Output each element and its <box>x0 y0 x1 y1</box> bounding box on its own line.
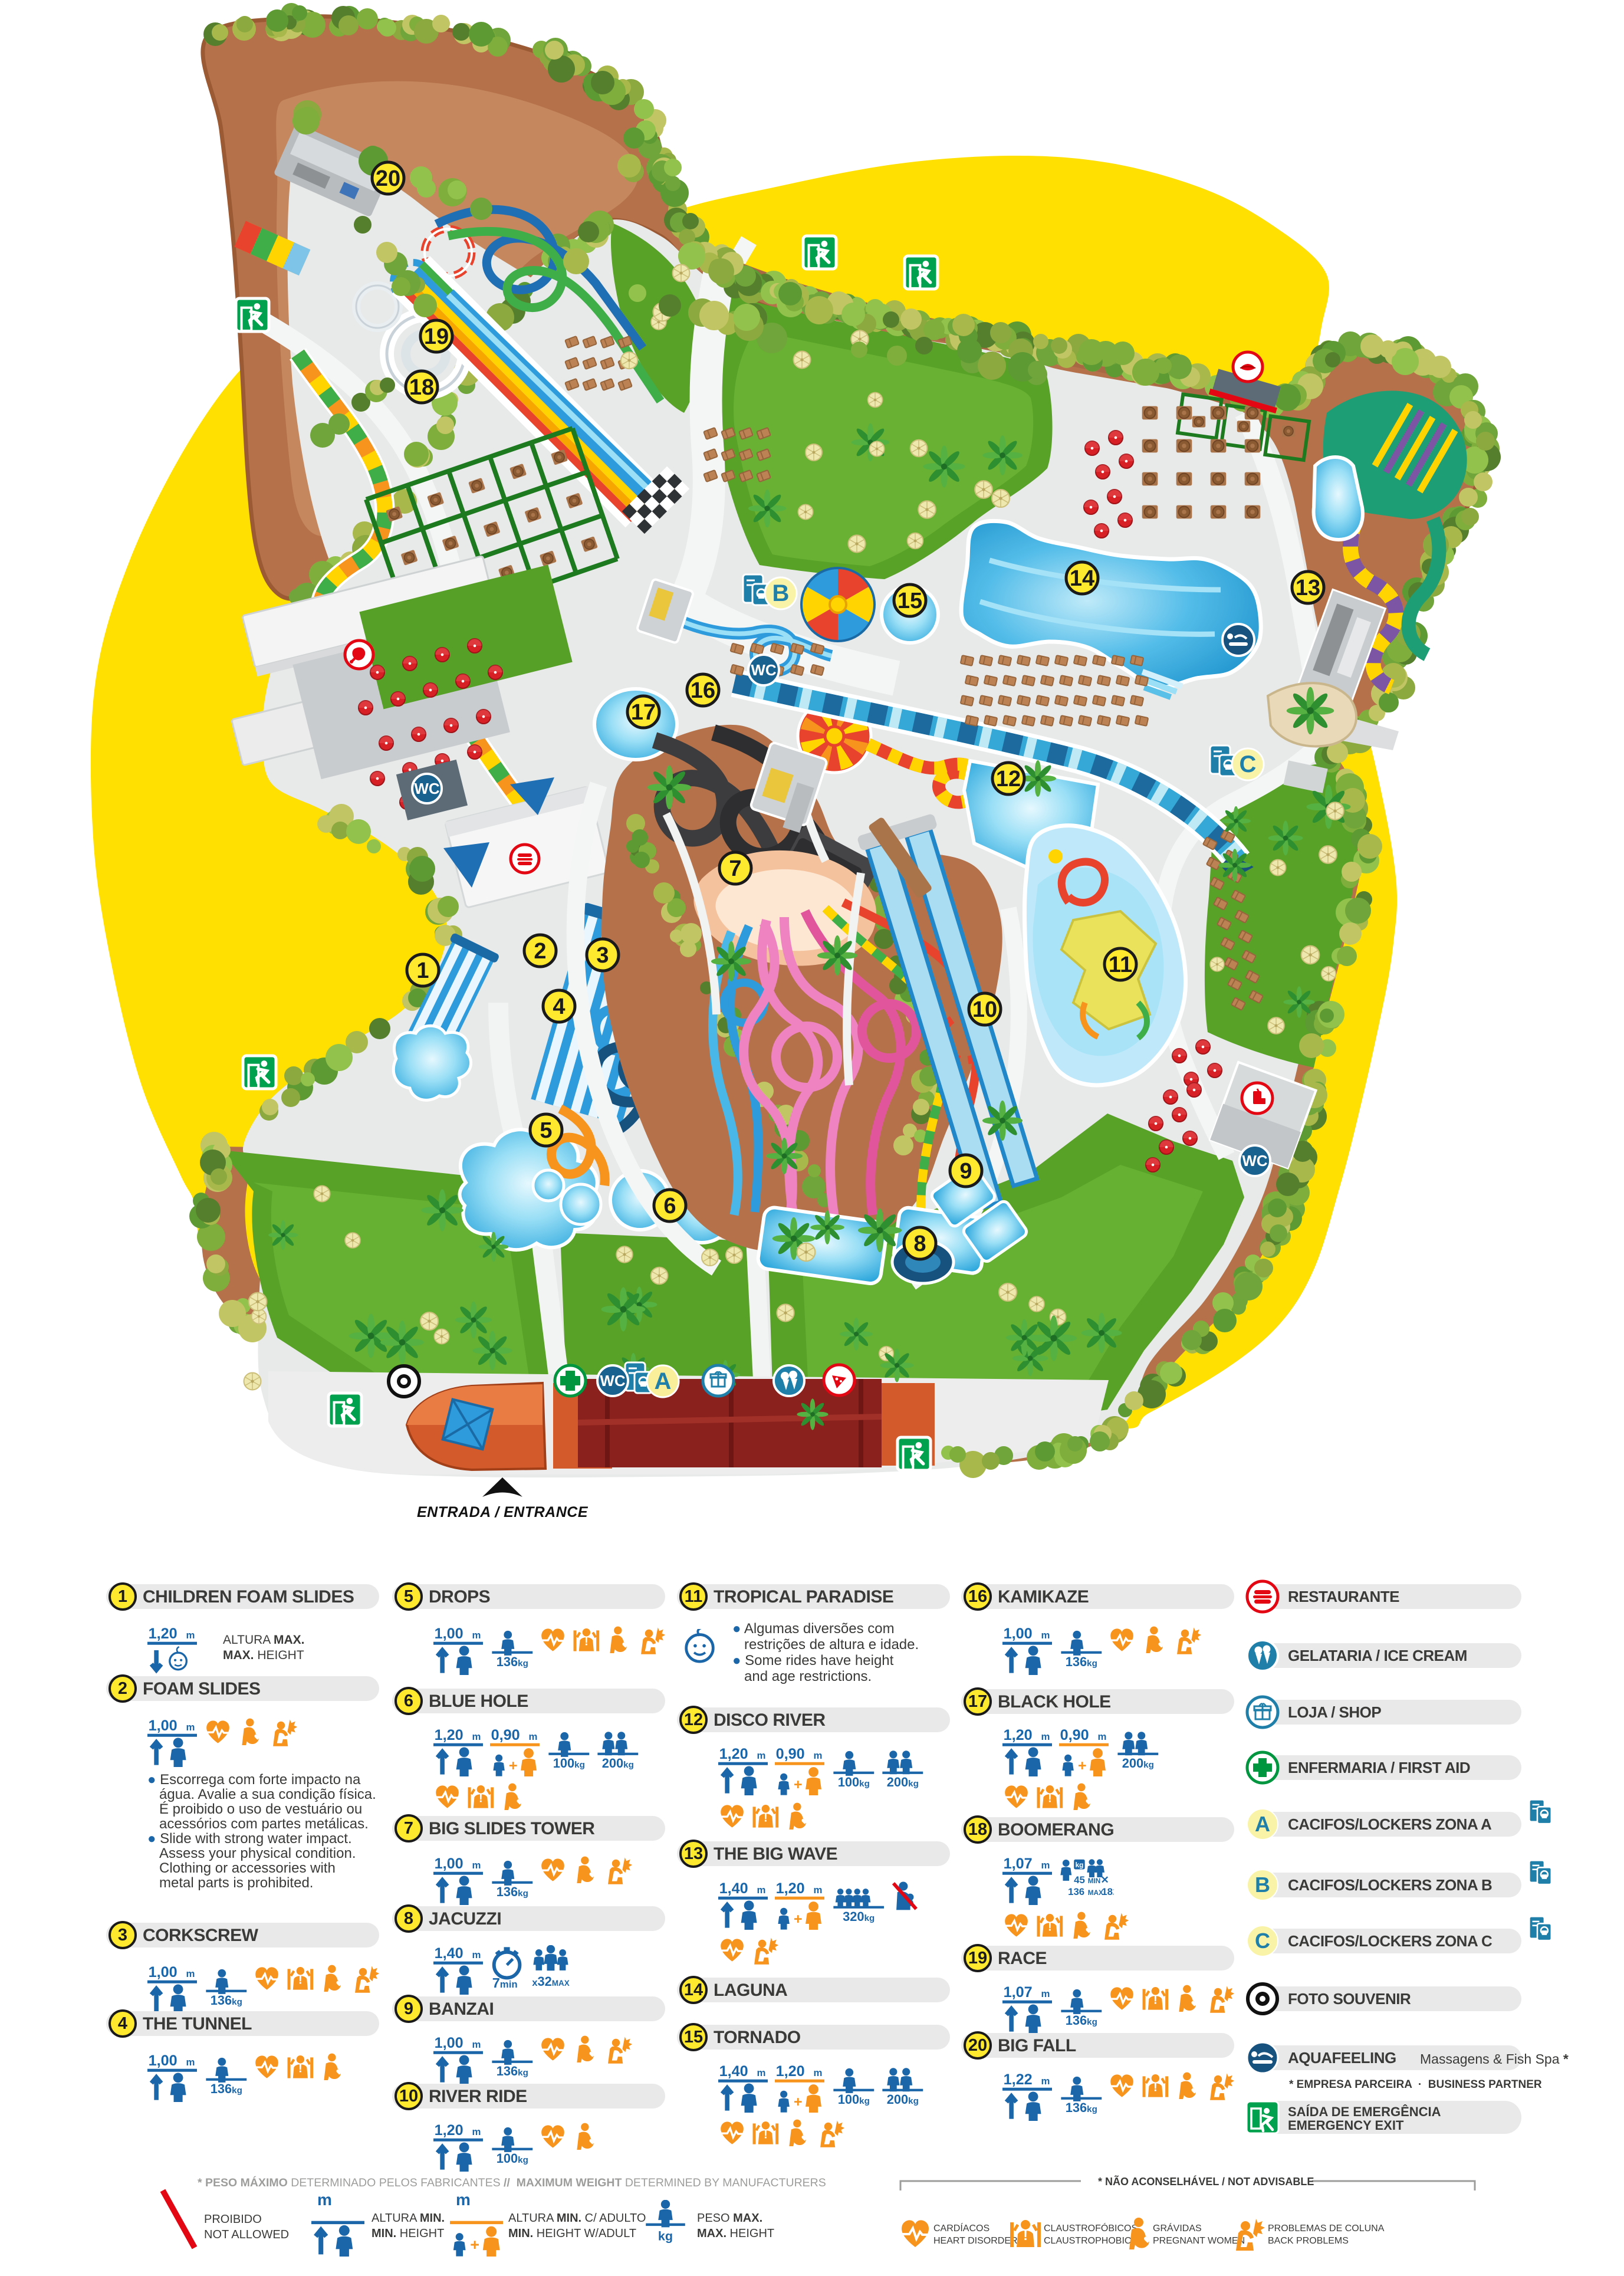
svg-text:1,00: 1,00 <box>1004 1625 1033 1642</box>
svg-text:!: ! <box>298 2062 303 2075</box>
svg-text:m: m <box>186 2057 195 2068</box>
svg-text:!: ! <box>1153 2081 1158 2094</box>
svg-text:136kg: 136kg <box>211 2081 242 2096</box>
svg-text:!: ! <box>298 1974 303 1987</box>
svg-text:m: m <box>757 2067 766 2078</box>
svg-text:136kg: 136kg <box>1066 1654 1097 1669</box>
svg-text:x32MAX: x32MAX <box>532 1974 570 1989</box>
svg-text:13: 13 <box>1296 576 1320 600</box>
svg-text:B: B <box>772 580 790 606</box>
svg-text:136kg: 136kg <box>497 1884 528 1899</box>
svg-text:MIN: MIN <box>1088 1877 1101 1885</box>
svg-text:1,00: 1,00 <box>149 1964 177 1981</box>
svg-text:m: m <box>1098 1731 1107 1742</box>
svg-text:1,40: 1,40 <box>719 2063 748 2080</box>
svg-text:A: A <box>1255 1812 1270 1836</box>
svg-text:m: m <box>186 1722 195 1733</box>
svg-text:m: m <box>757 1750 766 1761</box>
svg-text:ENTRADA / ENTRANCE: ENTRADA / ENTRANCE <box>417 1504 589 1520</box>
svg-text:136kg: 136kg <box>497 1654 528 1669</box>
svg-text:18: 18 <box>409 375 434 400</box>
svg-text:19: 19 <box>424 324 449 349</box>
svg-text:m: m <box>529 1731 538 1742</box>
svg-text:m: m <box>1041 1988 1050 1999</box>
svg-text:m: m <box>1041 1731 1050 1742</box>
svg-text:!: ! <box>584 1635 589 1648</box>
svg-text:m: m <box>472 2039 481 2050</box>
svg-text:1,07: 1,07 <box>1004 1984 1033 2001</box>
svg-text:9: 9 <box>959 1159 972 1184</box>
svg-text:1,20: 1,20 <box>776 1880 805 1897</box>
svg-text:!: ! <box>479 1792 483 1805</box>
svg-text:10: 10 <box>972 997 997 1022</box>
svg-text:+: + <box>509 1758 518 1774</box>
svg-text:kg: kg <box>658 2228 673 2243</box>
svg-text:8: 8 <box>913 1231 926 1256</box>
svg-text:136kg: 136kg <box>1066 2013 1097 2028</box>
svg-text:m: m <box>814 1884 823 1896</box>
svg-text:200kg: 200kg <box>602 1756 634 1771</box>
svg-text:m: m <box>186 1968 195 1979</box>
svg-text:12: 12 <box>996 767 1021 791</box>
svg-text:m: m <box>1041 1630 1050 1641</box>
svg-text:m: m <box>472 1630 481 1641</box>
svg-text:!: ! <box>1048 1792 1052 1805</box>
svg-text:200kg: 200kg <box>887 2092 919 2107</box>
svg-text:320kg: 320kg <box>843 1909 875 1924</box>
svg-text:1,20: 1,20 <box>435 2122 463 2139</box>
svg-text:1,40: 1,40 <box>719 1880 748 1897</box>
svg-text:B: B <box>1255 1873 1270 1897</box>
svg-text:2: 2 <box>534 939 546 964</box>
svg-text:17: 17 <box>631 700 656 725</box>
svg-text:+: + <box>470 2236 479 2254</box>
svg-text:14: 14 <box>1070 566 1094 591</box>
svg-text:A: A <box>655 1368 672 1394</box>
svg-text:!: ! <box>764 1812 768 1825</box>
svg-text:m: m <box>814 1750 823 1761</box>
svg-text:+: + <box>1078 1758 1087 1774</box>
svg-text:5: 5 <box>540 1118 552 1143</box>
svg-text:✕: ✕ <box>1101 1874 1109 1886</box>
svg-text:!: ! <box>764 2129 768 2142</box>
svg-text:3: 3 <box>596 943 609 968</box>
svg-text:1,20: 1,20 <box>149 1625 177 1642</box>
svg-text:m: m <box>814 2067 823 2078</box>
svg-text:1,40: 1,40 <box>435 1945 463 1962</box>
svg-text:136kg: 136kg <box>211 1993 242 2008</box>
svg-text:WC: WC <box>1242 1152 1268 1170</box>
svg-text:7: 7 <box>729 856 741 881</box>
svg-text:45: 45 <box>1074 1874 1085 1886</box>
svg-text:!: ! <box>1153 1994 1158 2007</box>
svg-text:1,00: 1,00 <box>435 1625 463 1642</box>
svg-text:136kg: 136kg <box>1066 2100 1097 2115</box>
svg-text:16: 16 <box>691 678 715 703</box>
svg-text:0,90: 0,90 <box>1060 1727 1089 1743</box>
svg-text:1,00: 1,00 <box>149 2052 177 2069</box>
svg-text:m: m <box>472 1860 481 1871</box>
svg-text:WC: WC <box>414 780 440 797</box>
svg-text:m: m <box>472 1949 481 1960</box>
svg-text:136: 136 <box>1068 1886 1084 1897</box>
svg-text:MAX: MAX <box>1088 1889 1103 1897</box>
svg-text:1: 1 <box>416 958 429 983</box>
svg-text:136kg: 136kg <box>497 2064 528 2078</box>
svg-text:m: m <box>186 1630 195 1641</box>
svg-text:1,20: 1,20 <box>776 2063 805 2080</box>
svg-text:C: C <box>1255 1929 1270 1953</box>
svg-text:m: m <box>1041 2075 1050 2087</box>
svg-text:20: 20 <box>376 166 400 191</box>
svg-text:6: 6 <box>663 1194 676 1219</box>
svg-text:WC: WC <box>751 661 777 679</box>
svg-text:0,90: 0,90 <box>776 1746 805 1762</box>
svg-text:!: ! <box>1023 2228 1028 2244</box>
svg-text:m: m <box>472 2126 481 2137</box>
svg-text:100kg: 100kg <box>838 2092 870 2107</box>
svg-text:100kg: 100kg <box>497 2151 528 2166</box>
svg-text:m: m <box>757 1884 766 1896</box>
svg-text:m: m <box>472 1731 481 1742</box>
svg-text:1,07: 1,07 <box>1004 1855 1033 1872</box>
svg-text:+: + <box>794 1776 803 1793</box>
svg-text:1,20: 1,20 <box>435 1727 463 1743</box>
svg-text:+: + <box>794 2094 803 2110</box>
svg-text:1,20: 1,20 <box>719 1746 748 1762</box>
svg-text:kg: kg <box>1076 1861 1084 1869</box>
svg-text:C: C <box>1240 751 1257 777</box>
svg-text:182: 182 <box>1102 1886 1113 1897</box>
svg-text:200kg: 200kg <box>1122 1756 1154 1771</box>
svg-text:4: 4 <box>553 994 565 1019</box>
svg-text:m: m <box>1041 1860 1050 1871</box>
svg-text:1,20: 1,20 <box>1004 1727 1033 1743</box>
svg-text:1,00: 1,00 <box>149 1717 177 1734</box>
svg-text:100kg: 100kg <box>553 1756 585 1771</box>
svg-text:100kg: 100kg <box>838 1775 870 1789</box>
svg-text:!: ! <box>1048 1921 1052 1934</box>
svg-text:WC: WC <box>600 1372 626 1390</box>
svg-text:0,90: 0,90 <box>491 1727 520 1743</box>
svg-text:+: + <box>794 1911 803 1927</box>
svg-text:1,22: 1,22 <box>1004 2071 1033 2088</box>
svg-text:1,00: 1,00 <box>435 2035 463 2051</box>
svg-text:200kg: 200kg <box>887 1775 919 1789</box>
svg-text:15: 15 <box>898 589 922 613</box>
svg-text:1,00: 1,00 <box>435 1855 463 1872</box>
svg-text:11: 11 <box>1109 953 1132 977</box>
